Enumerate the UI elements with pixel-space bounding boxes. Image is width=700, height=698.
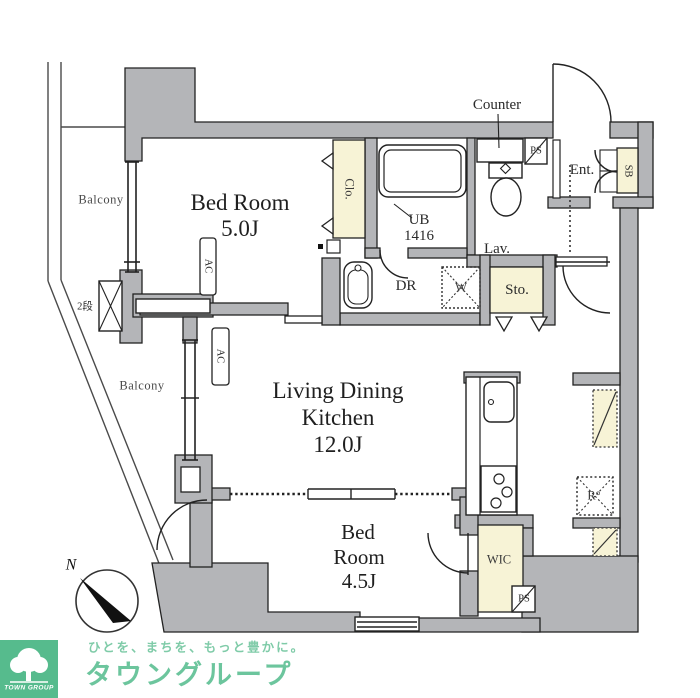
ps-top-label: PS — [530, 145, 542, 156]
balcony-lower-label: Balcony — [119, 379, 164, 392]
storage-label: Sto. — [505, 283, 529, 299]
fridge-label: R° — [587, 489, 600, 502]
floorplan-drawing — [0, 0, 700, 698]
shoebox-label: SB — [622, 165, 633, 178]
entrance-label: Ent. — [570, 163, 595, 179]
logo-caption: TOWN GROUP — [4, 686, 53, 693]
balcony-upper-label: Balcony — [78, 193, 123, 206]
floorplan-page: Counter PS Ent. SB Clo. UB 1416 Lav. DR … — [0, 0, 700, 698]
ldk-size: 12.0J — [313, 433, 362, 457]
storage-hatch — [593, 390, 617, 556]
unit-bath-label: UB — [409, 213, 430, 229]
wic-label: WIC — [487, 553, 511, 566]
entrance-jamb — [553, 140, 560, 198]
closet-label: Clo. — [342, 178, 355, 199]
two-step-shelf — [99, 281, 122, 331]
compass-north-label: N — [66, 558, 77, 575]
compass-needle — [80, 578, 131, 623]
ps-bottom-label: PS — [518, 593, 530, 604]
bathtub-fixture — [379, 145, 466, 197]
bedroom1-label: Bed Room — [190, 191, 289, 215]
kitchen-fixtures — [466, 377, 517, 515]
unit-bath-size: 1416 — [404, 229, 434, 245]
hinge-boxes — [318, 240, 340, 253]
lavatory-label: Lav. — [484, 242, 510, 258]
bedroom2-label-line1: Bed — [341, 521, 375, 543]
compass — [76, 570, 138, 632]
two-step-label: 2段 — [77, 301, 93, 312]
toilet-fixture — [489, 163, 522, 216]
ac2-label: AC — [214, 349, 225, 364]
basin-fixture — [344, 262, 372, 308]
ldk-label-line2: Kitchen — [302, 406, 375, 430]
site-boundary-lines — [48, 62, 186, 632]
bedroom2-size: 4.5J — [342, 570, 376, 592]
ac1-label: AC — [202, 259, 213, 274]
bedroom1-size: 5.0J — [221, 217, 259, 241]
logo-brand-name: タウングループ — [85, 661, 293, 689]
logo-tagline: ひとを、まちを、もっと豊かに。 — [88, 641, 305, 654]
counter-label: Counter — [473, 98, 521, 114]
washer-label: W — [455, 281, 467, 294]
ldk-label-line1: Living Dining — [273, 379, 404, 403]
dressing-room-label: DR — [396, 279, 417, 295]
bedroom2-label-line2: Room — [333, 546, 384, 568]
